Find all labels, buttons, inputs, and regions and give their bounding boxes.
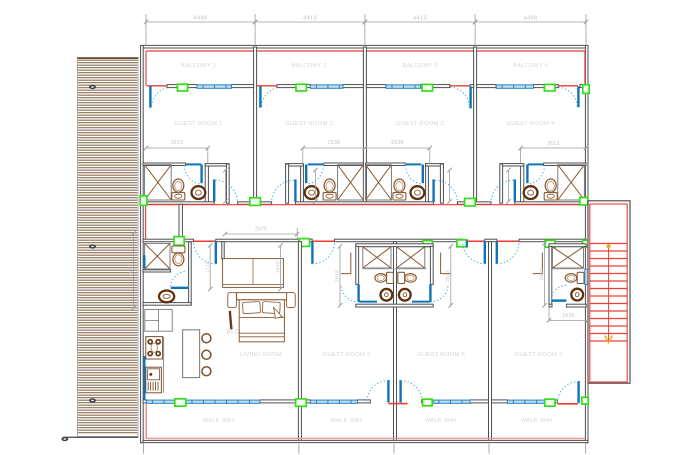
- svg-text:BALCONY 1: BALCONY 1: [181, 63, 216, 69]
- svg-text:WALK WAY: WALK WAY: [521, 418, 553, 424]
- svg-text:WALK WAY: WALK WAY: [203, 418, 235, 424]
- svg-text:LIVING ROOM: LIVING ROOM: [240, 352, 282, 358]
- svg-text:2613: 2613: [171, 140, 183, 146]
- svg-text:2613: 2613: [334, 270, 340, 282]
- svg-text:2538: 2538: [328, 140, 340, 146]
- svg-text:2613: 2613: [539, 268, 545, 280]
- svg-text:WALK WAY: WALK WAY: [425, 418, 457, 424]
- svg-text:GUEST ROOM 6: GUEST ROOM 6: [417, 352, 466, 358]
- svg-text:2613: 2613: [445, 270, 451, 282]
- svg-text:GUEST ROOM 4: GUEST ROOM 4: [506, 121, 555, 127]
- svg-text:2613: 2613: [547, 141, 559, 147]
- svg-text:GUEST ROOM 1: GUEST ROOM 1: [174, 121, 222, 127]
- svg-text:1535: 1535: [562, 313, 574, 319]
- svg-text:GUEST ROOM 5: GUEST ROOM 5: [323, 352, 372, 358]
- svg-text:BALCONY 3: BALCONY 3: [402, 63, 438, 69]
- svg-text:4488: 4488: [194, 15, 208, 21]
- svg-text:BALCONY 4: BALCONY 4: [513, 63, 549, 69]
- svg-text:2538: 2538: [391, 140, 403, 146]
- svg-text:GUEST ROOM 2: GUEST ROOM 2: [285, 121, 333, 127]
- svg-text:1712: 1712: [204, 261, 210, 273]
- svg-text:2875: 2875: [128, 265, 134, 277]
- svg-text:BALCONY 2: BALCONY 2: [291, 63, 326, 69]
- svg-text:WALK WAY: WALK WAY: [330, 418, 362, 424]
- svg-text:GUEST ROOM 7: GUEST ROOM 7: [515, 352, 563, 358]
- svg-text:2875: 2875: [255, 227, 267, 233]
- svg-text:4413: 4413: [303, 15, 317, 21]
- svg-text:4413: 4413: [413, 15, 427, 21]
- svg-text:GUEST ROOM 3: GUEST ROOM 3: [396, 121, 445, 127]
- svg-text:4488: 4488: [524, 15, 538, 21]
- svg-text:1512: 1512: [275, 261, 281, 273]
